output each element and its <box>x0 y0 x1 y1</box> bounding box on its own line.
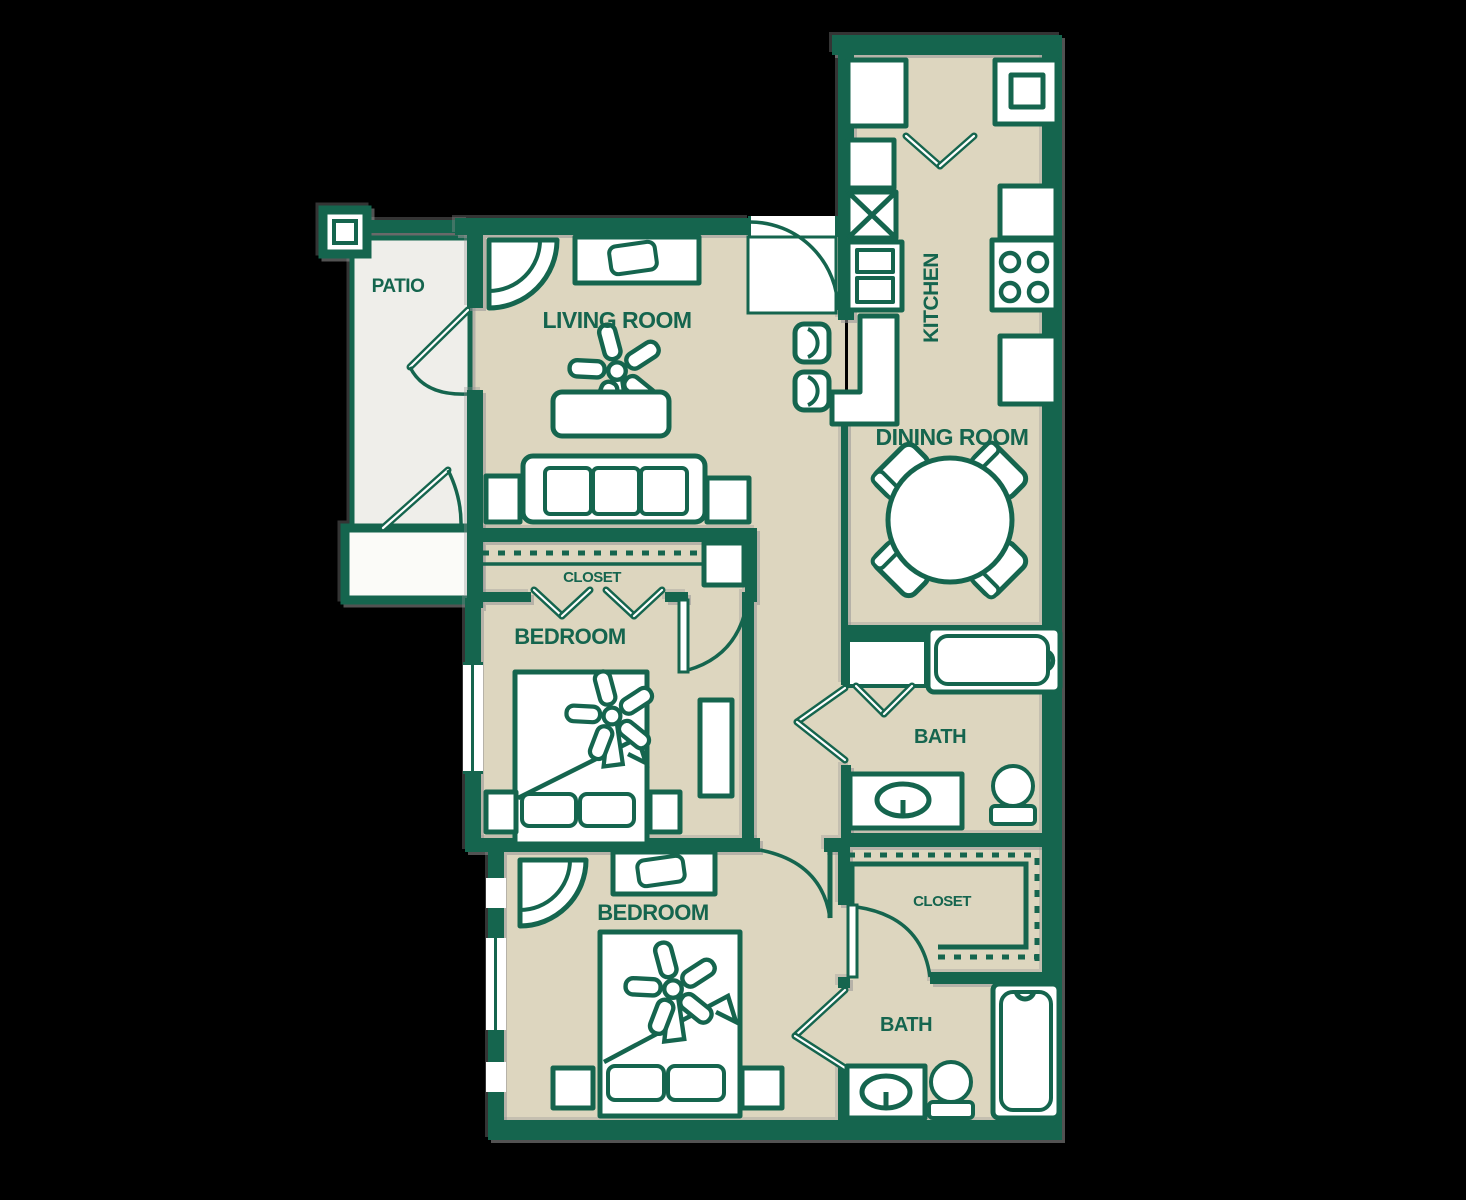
bath1-label: BATH <box>914 726 966 748</box>
sink-vanity <box>847 1066 925 1118</box>
end-table-left <box>486 476 520 522</box>
pillow <box>668 1066 724 1100</box>
sink-vanity <box>850 774 962 828</box>
patio-stoop <box>345 528 477 600</box>
nightstand <box>650 792 680 832</box>
kitchen-counter-right-lower <box>1000 336 1056 404</box>
bathtub-vertical <box>993 984 1059 1118</box>
utility-box <box>848 192 896 238</box>
bar-stool <box>795 324 829 362</box>
pillow <box>608 1066 664 1100</box>
pillow <box>580 794 634 826</box>
patio-label: PATIO <box>372 276 425 297</box>
patio-area <box>323 210 477 600</box>
dining-room-label: DINING ROOM <box>876 424 1029 450</box>
end-table-right <box>707 478 749 522</box>
toilet <box>991 766 1035 824</box>
coffee-table <box>553 392 669 436</box>
nightstand <box>742 1068 782 1108</box>
toilet <box>929 1062 973 1118</box>
tv-console <box>613 852 715 894</box>
stove <box>992 240 1056 310</box>
kitchen-counter-right <box>1000 186 1056 238</box>
dining-table <box>888 458 1012 582</box>
nightstand <box>553 1068 593 1108</box>
sofa <box>523 456 705 522</box>
closet1-label: CLOSET <box>563 569 621 586</box>
floor-plan-canvas: PATIO LIVING ROOM KITCHEN DINING ROOM BE… <box>0 0 1466 1200</box>
bedroom1-window <box>463 662 483 774</box>
living-room-label: LIVING ROOM <box>542 307 691 333</box>
bathtub <box>928 628 1060 692</box>
tv-console <box>575 237 699 283</box>
bath2-label: BATH <box>880 1014 932 1036</box>
kitchen-label: KITCHEN <box>920 253 943 343</box>
kitchen-counter-left <box>848 140 894 188</box>
patio-post <box>323 210 367 254</box>
dresser <box>700 700 732 796</box>
kitchen-cabinet <box>848 242 902 310</box>
linen-shelf <box>704 543 744 585</box>
refrigerator <box>848 60 906 126</box>
bedroom2-label: BEDROOM <box>597 900 708 925</box>
entry-tile <box>748 237 836 313</box>
bar-stool <box>795 372 829 410</box>
bedroom1-label: BEDROOM <box>514 624 625 649</box>
floor-areas <box>467 50 1048 1125</box>
kitchen-sink <box>995 60 1057 124</box>
closet2-label: CLOSET <box>913 893 971 910</box>
nightstand <box>486 792 516 832</box>
pillow <box>522 794 576 826</box>
bath1-counter <box>848 640 926 686</box>
dining-room <box>871 441 1030 600</box>
floor-plan: PATIO LIVING ROOM KITCHEN DINING ROOM BE… <box>0 0 1466 1200</box>
